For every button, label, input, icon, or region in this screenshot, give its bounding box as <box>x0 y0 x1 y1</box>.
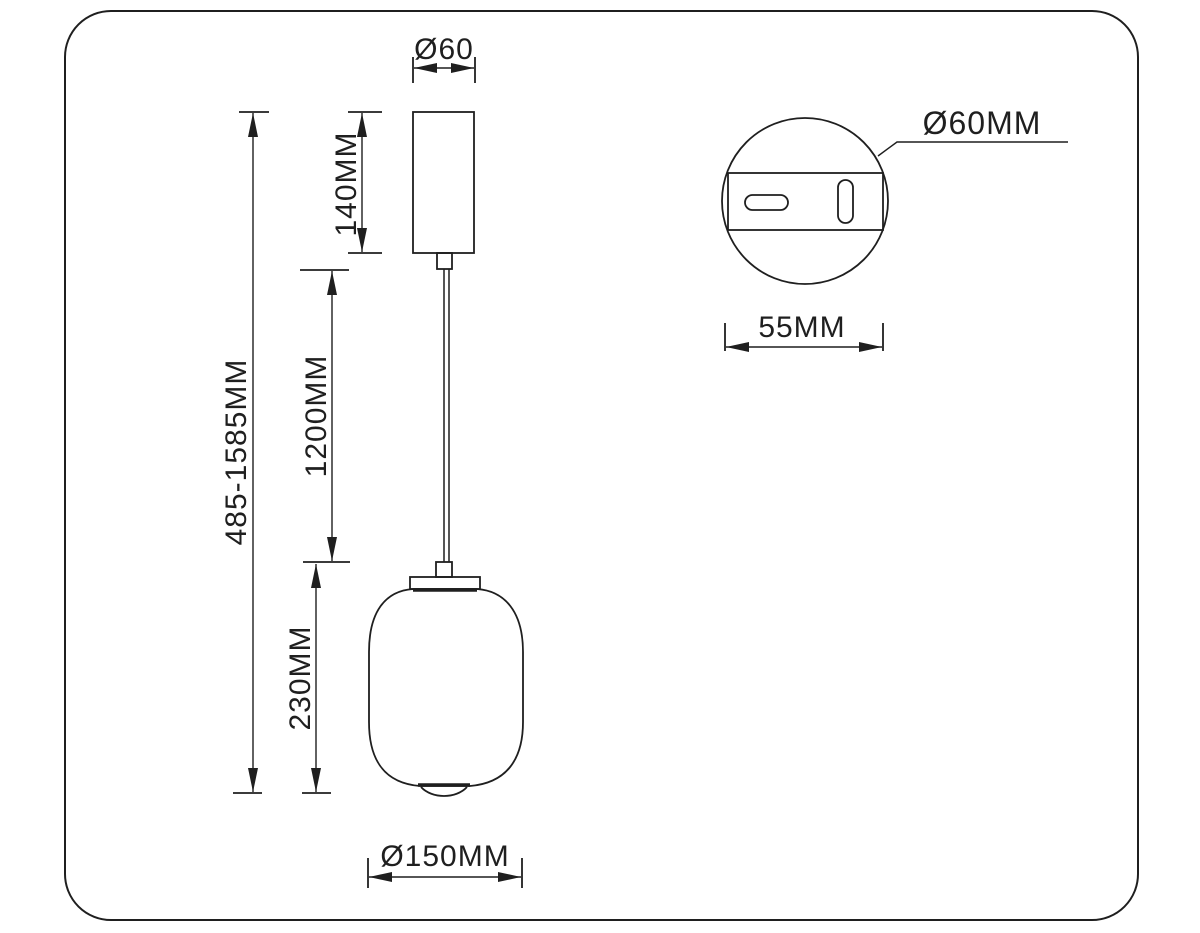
arrowhead-right <box>859 342 882 352</box>
detail-circle <box>722 118 888 284</box>
shade-height-label: 230MM <box>284 625 317 730</box>
dimension-shade-height: 230MM <box>284 564 331 793</box>
arrowhead-right <box>498 872 521 882</box>
shade-cap <box>410 577 480 589</box>
mounting-slot-horizontal <box>745 195 788 210</box>
pendant-light-dimension-diagram: Ø60 485-1585MM 140MM 1200MM <box>0 0 1200 933</box>
dimension-cable-length: 1200MM <box>300 270 350 562</box>
shade-cable-connector <box>436 562 452 577</box>
arrowhead-left <box>369 872 392 882</box>
dimension-shade-diameter: Ø150MM <box>368 840 522 888</box>
dimension-plate-width: 55MM <box>725 311 883 352</box>
front-view <box>369 112 523 796</box>
suspension-cable <box>444 269 449 562</box>
arrowhead-down <box>327 537 337 561</box>
canopy-cable-connector <box>437 253 452 269</box>
plate-width-label: 55MM <box>758 311 845 344</box>
cable-length-label: 1200MM <box>300 355 333 478</box>
dimension-top-diameter: Ø60 <box>413 33 475 83</box>
mounting-plate <box>728 173 883 230</box>
glass-shade <box>369 589 523 786</box>
leader-line <box>878 142 1068 156</box>
arrowhead-up <box>248 113 258 137</box>
dimension-canopy-height: 140MM <box>330 112 382 253</box>
arrowhead-left <box>726 342 749 352</box>
technical-drawing-canvas: Ø60 485-1585MM 140MM 1200MM <box>0 0 1200 933</box>
bottom-diffuser-dome <box>421 787 467 796</box>
detail-view: Ø60MM 55MM <box>722 105 1068 352</box>
arrowhead-down <box>248 768 258 792</box>
canopy-body <box>413 112 474 253</box>
arrowhead-up <box>311 564 321 588</box>
arrowhead-down <box>311 768 321 792</box>
dimension-overall-height: 485-1585MM <box>220 112 269 793</box>
canopy-height-label: 140MM <box>330 131 363 236</box>
canopy-diameter-label: Ø60MM <box>923 105 1042 141</box>
shade-diameter-label: Ø150MM <box>380 840 509 873</box>
top-diameter-label: Ø60 <box>414 33 474 66</box>
arrowhead-up <box>327 271 337 295</box>
mounting-slot-vertical <box>838 180 853 223</box>
overall-height-label: 485-1585MM <box>220 359 253 546</box>
